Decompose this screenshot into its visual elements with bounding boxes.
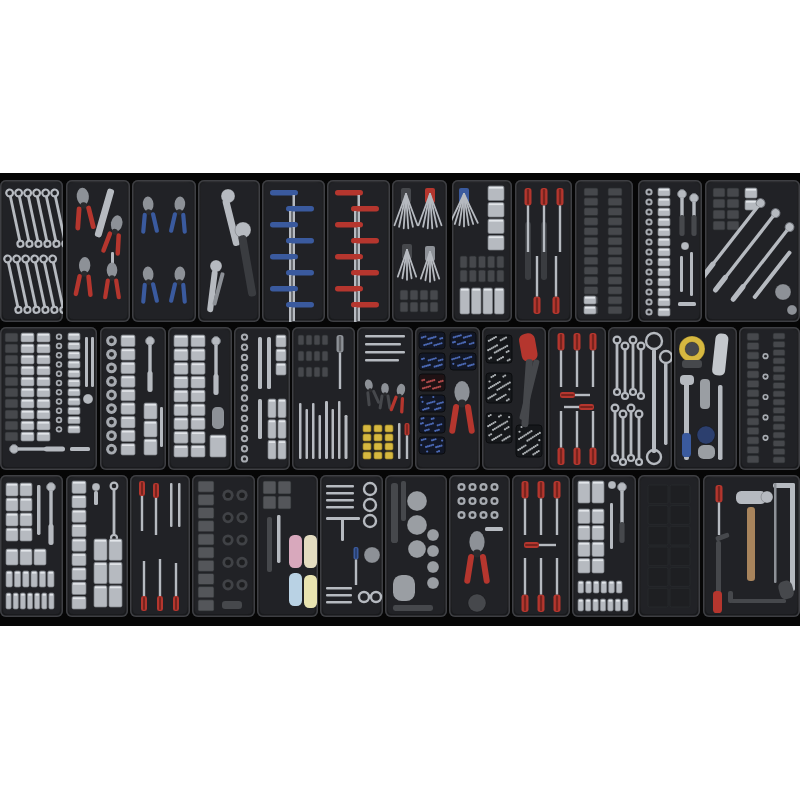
grid-sock	[68, 333, 80, 433]
tray-hammer-hacksaw-prybars	[703, 475, 800, 617]
tray-precision-tools-and-yellow-bits	[357, 327, 413, 470]
tray-socket-set-with-ring-sockets	[100, 327, 166, 470]
bar-tool	[319, 415, 322, 459]
bar-tool	[222, 601, 242, 609]
bar-tool	[652, 349, 656, 453]
tray-screwdrivers-red-2	[512, 475, 570, 617]
tray-electrical-assortment-and-crimper	[415, 327, 480, 470]
disc-tool	[427, 561, 439, 573]
bar-tool	[170, 483, 173, 527]
tray-bit-columns	[739, 327, 800, 470]
bar-tool	[326, 499, 354, 502]
bar-tool	[326, 485, 354, 488]
socket-pale-yellow	[304, 575, 317, 608]
bar-tool	[332, 409, 335, 459]
bar-tool	[682, 433, 691, 457]
bar-tool	[326, 594, 352, 597]
tray-bit-holders-and-punches	[292, 327, 355, 470]
tray-sockets-and-extension-bars	[234, 327, 290, 470]
tool-chest-photo	[0, 173, 800, 626]
wind-back-plate	[393, 575, 415, 601]
tray-hex-keys-blue-and-bit-sockets-contents	[452, 180, 512, 322]
disc-tool	[761, 491, 773, 503]
tray-long-bit-sockets-dark-contents	[575, 180, 633, 322]
tray-breaker-bars	[705, 180, 800, 322]
tray-t-handle-hex-red	[327, 180, 390, 322]
socket-light-blue	[289, 573, 302, 606]
parts-compartment	[419, 374, 445, 391]
tray-circlip-pliers-blue	[132, 180, 196, 322]
bar-tool	[326, 506, 354, 509]
disc-tool	[608, 481, 616, 489]
bar-tool	[267, 517, 272, 572]
steel-rule	[718, 385, 723, 460]
tray-adjustable-wrenches-contents	[198, 180, 260, 322]
bar-tool	[258, 399, 262, 439]
tray-socket-ratchet-set-contents	[0, 475, 63, 617]
bar-tool	[267, 337, 271, 389]
grid-sock	[210, 435, 226, 457]
tray-brake-caliper-kit	[385, 475, 447, 617]
grid-sock	[174, 335, 188, 457]
tray-hole-punch-pliers-contents	[449, 475, 510, 617]
tray-rivet-assortment-and-rivet-gun-contents	[482, 327, 546, 470]
bar-tool	[610, 503, 613, 549]
parts-compartment	[516, 425, 542, 457]
tray-long-bit-sockets-dark	[575, 180, 633, 322]
bar-tool	[678, 302, 696, 306]
tray-tap-and-die-set-contents	[320, 475, 383, 617]
tray-large-socket-set-contents	[0, 327, 97, 470]
bar-tool	[485, 527, 503, 531]
disc-tool	[92, 483, 100, 491]
parts-compartment	[419, 437, 445, 454]
bar-tool	[365, 351, 405, 354]
bar-tool	[85, 337, 88, 387]
tray-hex-keys-blue-and-bit-sockets	[452, 180, 512, 322]
tray-hammer-hacksaw-prybars-contents	[703, 475, 800, 617]
bar-tool	[70, 447, 90, 451]
disc-tool	[775, 284, 791, 300]
product-photo-page	[0, 0, 800, 800]
socket-cream	[304, 535, 317, 568]
bar-tool	[682, 360, 702, 368]
bar-tool	[690, 252, 693, 296]
bar-tool	[326, 601, 352, 604]
disc-tool	[685, 342, 699, 356]
parts-compartment	[486, 373, 512, 403]
disc-tool	[681, 242, 689, 250]
tray-adjustable-wrenches	[198, 180, 260, 322]
bar-tool	[326, 587, 352, 590]
bar-tool	[401, 481, 406, 521]
disc-tool	[697, 426, 715, 444]
tray-brake-caliper-kit-contents	[385, 475, 447, 617]
tray-l-hex-keys-contents	[392, 180, 447, 322]
hammer-handle	[747, 507, 755, 581]
bar-tool	[299, 403, 302, 459]
parts-compartment	[450, 332, 476, 349]
parts-compartment	[419, 416, 445, 433]
tray-socket-set-with-ring-sockets-contents	[100, 327, 166, 470]
tray-hole-punch-pliers	[449, 475, 510, 617]
disc-tool	[787, 305, 797, 315]
tray-circlip-pliers-blue-contents	[132, 180, 196, 322]
tray-impact-adaptors-and-colored-sockets-contents	[257, 475, 318, 617]
bar-tool	[728, 591, 733, 603]
bar-tool	[664, 363, 668, 445]
tray-impact-sockets-black-contents	[192, 475, 255, 617]
bar-tool	[680, 256, 683, 292]
tray-deep-sockets-and-spanner	[66, 475, 128, 617]
tray-pliers-red	[66, 180, 130, 322]
bar-tool	[365, 359, 399, 362]
bar-tool	[178, 483, 181, 527]
tray-empty	[638, 475, 700, 617]
disc-tool	[408, 540, 426, 558]
hacksaw-blade	[774, 483, 777, 583]
tray-electrical-assortment-and-crimper-contents	[415, 327, 480, 470]
tray-socket-ratchet-set	[0, 475, 63, 617]
grid-sock	[72, 481, 86, 609]
tray-large-socket-set	[0, 327, 97, 470]
bar-tool	[37, 485, 41, 535]
tray-deep-socket-set-contents	[168, 327, 232, 470]
disc-tool	[407, 491, 427, 511]
tray-picks-and-drivers-red-contents	[130, 475, 190, 617]
bar-tool	[698, 445, 715, 459]
disc-tool	[210, 260, 222, 272]
tray-t-handle-hex-blue	[262, 180, 325, 322]
tray-empty-contents	[638, 475, 700, 617]
tray-t-handle-hex-blue-contents	[262, 180, 325, 322]
tray-sockets-and-torx-contents	[572, 475, 636, 617]
grid-sock	[276, 335, 286, 375]
tray-deep-socket-set	[168, 327, 232, 470]
bar-tool	[680, 375, 694, 385]
disc-tool	[407, 515, 427, 535]
disc-tool	[427, 577, 439, 589]
grid-sock	[191, 335, 205, 457]
bar-tool	[365, 343, 401, 346]
tray-precision-tools-and-yellow-bits-contents	[357, 327, 413, 470]
grid-sock	[121, 335, 135, 455]
disc-tool	[468, 594, 486, 612]
tray-measuring-tools-contents	[674, 327, 737, 470]
tray-deep-sockets-and-spanner-contents	[66, 475, 128, 617]
bar-tool	[212, 407, 224, 429]
bar-tool	[326, 492, 354, 495]
bar-tool	[277, 515, 281, 563]
tray-breaker-bars-contents	[705, 180, 800, 322]
parts-compartment	[419, 332, 445, 349]
tray-pliers-red-contents	[66, 180, 130, 322]
tray-sockets-and-stubby-ratchets-contents	[638, 180, 702, 322]
bar-tool	[306, 409, 309, 459]
grid-sock	[6, 593, 54, 609]
grid-sock	[144, 403, 157, 455]
bar-tool	[345, 415, 348, 459]
tray-bit-columns-contents	[739, 327, 800, 470]
tray-t-handle-hex-red-contents	[327, 180, 390, 322]
bar-tool	[325, 401, 328, 459]
socket-pink	[289, 535, 302, 568]
hacksaw-frame-side	[790, 483, 795, 591]
tray-measuring-tools	[674, 327, 737, 470]
bar-tool	[338, 401, 341, 459]
disc-tool	[427, 529, 439, 541]
tray-impact-sockets-black	[192, 475, 255, 617]
tray-sockets-and-torx	[572, 475, 636, 617]
parts-compartment	[419, 353, 445, 370]
bar-tool	[393, 605, 433, 611]
tray-sockets-and-extension-bars-contents	[234, 327, 290, 470]
disc-tool	[427, 545, 439, 557]
disc-tool	[83, 394, 93, 404]
disc-tool	[364, 547, 380, 563]
tray-picks-and-drivers-red	[130, 475, 190, 617]
tray-file-set-red-contents	[515, 180, 572, 322]
bar-tool	[341, 517, 344, 541]
bar-tool	[713, 591, 722, 613]
grid-ring	[106, 335, 117, 454]
tray-combination-spanners-contents	[0, 180, 63, 322]
bar-tool	[391, 483, 398, 543]
tray-rivet-assortment-and-rivet-gun	[482, 327, 546, 470]
parts-compartment	[419, 395, 445, 412]
tray-spanner-set	[608, 327, 672, 470]
tray-screwdrivers-red-contents	[548, 327, 606, 470]
bar-tool	[312, 403, 315, 459]
tray-tap-and-die-set	[320, 475, 383, 617]
tray-file-set-red	[515, 180, 572, 322]
bar-tool	[731, 599, 786, 603]
bar-tool	[700, 379, 710, 409]
parts-compartment	[450, 353, 476, 370]
bar-tool	[258, 337, 262, 389]
bar-tool	[398, 423, 401, 459]
grid-sock	[6, 549, 46, 565]
bar-tool	[160, 407, 163, 447]
bar-tool	[365, 335, 405, 338]
pry-bar	[716, 541, 721, 593]
tray-spanner-set-contents	[608, 327, 672, 470]
parts-compartment	[486, 335, 512, 363]
grid-sock	[578, 599, 628, 611]
bar-tool	[94, 491, 98, 505]
tray-l-hex-keys	[392, 180, 447, 322]
bar-tool	[91, 337, 94, 387]
tray-impact-adaptors-and-colored-sockets	[257, 475, 318, 617]
tray-combination-spanners	[0, 180, 63, 322]
tray-bit-holders-and-punches-contents	[292, 327, 355, 470]
tray-screwdrivers-red	[548, 327, 606, 470]
tray-sockets-and-stubby-ratchets	[638, 180, 702, 322]
parts-compartment	[486, 413, 512, 443]
tray-screwdrivers-red-2-contents	[512, 475, 570, 617]
